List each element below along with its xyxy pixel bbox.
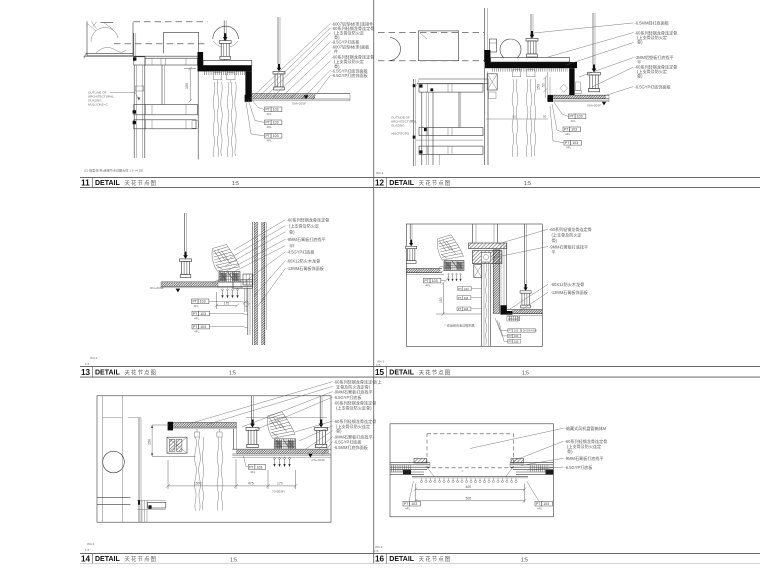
svg-text:1:5: 1:5 — [522, 371, 529, 377]
svg-text:4FL: 4FL — [250, 470, 256, 474]
svg-text:-6.5GYP打底饰面板: -6.5GYP打底饰面板 — [635, 83, 671, 89]
svg-text:4FL: 4FL — [194, 330, 200, 334]
svg-text:14: 14 — [81, 555, 91, 564]
svg-text:骨): 骨) — [336, 428, 342, 434]
svg-text:≈: ≈ — [462, 469, 464, 473]
svg-text:-6.5GYP打底饰面板: -6.5GYP打底饰面板 — [332, 72, 368, 78]
svg-text:1:5: 1:5 — [524, 181, 531, 187]
svg-text:4FL: 4FL — [565, 132, 571, 136]
svg-text:DN300X600: DN300X600 — [523, 329, 538, 333]
svg-text:平f: 平f — [289, 244, 295, 249]
svg-text:1:5: 1:5 — [232, 181, 239, 187]
svg-text:DETAIL: DETAIL — [389, 370, 414, 377]
svg-text:W4-2: W4-2 — [90, 356, 98, 360]
svg-text:件: 件 — [334, 48, 338, 54]
svg-text:1:5: 1:5 — [521, 557, 528, 563]
svg-text:-6.5MM硅打底面板: -6.5MM硅打底面板 — [635, 20, 669, 26]
svg-text:50: 50 — [543, 115, 547, 119]
svg-text:-60系列轻钢龙骨连定骨: -60系列轻钢龙骨连定骨 — [287, 217, 330, 223]
svg-text:4FL: 4FL — [267, 112, 273, 116]
svg-text:4FL: 4FL — [537, 507, 543, 511]
svg-text:150: 150 — [537, 84, 541, 90]
svg-text:4FL: 4FL — [267, 139, 273, 143]
svg-text:400: 400 — [466, 485, 472, 489]
svg-text:DN+30SF: DN+30SF — [150, 286, 164, 290]
svg-text:GM+30SF: GM+30SF — [587, 103, 601, 107]
svg-text:天花节点图: 天花节点图 — [419, 555, 451, 563]
svg-text:4FL: 4FL — [426, 284, 432, 288]
svg-text:4FL: 4FL — [405, 507, 411, 511]
svg-text:天花节点图: 天花节点图 — [419, 368, 451, 376]
svg-text:(上支骨及防火定: (上支骨及防火定 — [289, 223, 319, 229]
svg-text:天花节点图: 天花节点图 — [125, 179, 157, 187]
svg-text:11: 11 — [81, 178, 90, 187]
svg-text:DETAIL: DETAIL — [389, 556, 414, 563]
svg-text:骨): 骨) — [567, 448, 573, 454]
svg-text:475: 475 — [248, 482, 254, 486]
svg-text:DETAIL: DETAIL — [389, 180, 414, 187]
svg-text:1:5: 1:5 — [374, 549, 379, 553]
svg-text:1:5: 1:5 — [85, 362, 90, 366]
svg-text:4FL: 4FL — [194, 316, 200, 320]
svg-text:GLAZING: GLAZING — [391, 124, 405, 128]
svg-text:MULLIONS+C: MULLIONS+C — [88, 103, 109, 107]
svg-text:DETAIL: DETAIL — [95, 556, 120, 563]
svg-text:-12MM石膏板饰面板: -12MM石膏板饰面板 — [551, 289, 588, 295]
svg-text:150: 150 — [148, 439, 152, 445]
svg-text:W4-2: W4-2 — [376, 171, 384, 175]
svg-text:DN+30SF: DN+30SF — [312, 458, 326, 462]
svg-text:1:5: 1:5 — [229, 371, 236, 377]
svg-text:4FL: 4FL — [566, 146, 572, 150]
svg-text:天花节点图: 天花节点图 — [419, 179, 451, 187]
svg-text:-60X12防火木龙骨: -60X12防火木龙骨 — [551, 281, 585, 287]
svg-text:150: 150 — [185, 83, 189, 89]
svg-text:GM+30SF: GM+30SF — [292, 102, 306, 106]
svg-text:150: 150 — [439, 297, 443, 303]
svg-text:-60系列轻钢龙骨连定骨: -60系列轻钢龙骨连定骨 — [549, 226, 592, 232]
svg-text:1:5: 1:5 — [85, 548, 90, 552]
svg-text:50: 50 — [541, 83, 545, 87]
svg-text:-9MM石膏板打底找平: -9MM石膏板打底找平 — [287, 236, 326, 242]
svg-text:170: 170 — [277, 482, 283, 486]
svg-text:+65CRTGPS: +65CRTGPS — [391, 132, 409, 136]
svg-text:15: 15 — [375, 368, 385, 377]
svg-text:4FL: 4FL — [571, 119, 577, 123]
svg-text:70-BEMY: 70-BEMY — [272, 490, 285, 494]
svg-text:16: 16 — [375, 555, 385, 564]
svg-text:天花节点图: 天花节点图 — [125, 368, 157, 376]
svg-text:骨): 骨) — [637, 73, 643, 79]
svg-text:(C) 铝型材(条)连接节点详图大样 1:5 +4 DE: (C) 铝型材(条)连接节点详图大样 1:5 +4 DE — [84, 167, 143, 172]
svg-text:骨): 骨) — [552, 237, 558, 243]
svg-text:1:5: 1:5 — [230, 557, 237, 563]
svg-text:W4-2: W4-2 — [87, 542, 95, 546]
svg-text:-6.5GYP打底板: -6.5GYP打底板 — [334, 439, 362, 445]
svg-text:平: 平 — [552, 250, 556, 255]
svg-text:骨): 骨) — [637, 39, 643, 45]
svg-text:175: 175 — [224, 301, 230, 305]
svg-text:-9MM石膏板打底找平: -9MM石膏板打底找平 — [549, 243, 588, 249]
svg-text:1500: 1500 — [194, 482, 202, 486]
svg-text:支骨及防火连定骨): 支骨及防火连定骨) — [336, 383, 371, 389]
svg-text:4FL: 4FL — [267, 125, 273, 129]
svg-text:-12MM石膏板饰面板: -12MM石膏板饰面板 — [287, 265, 324, 271]
svg-text:-9MM石膏板打底找平: -9MM石膏板打底找平 — [565, 455, 604, 461]
svg-text:13: 13 — [81, 368, 91, 377]
svg-text:500: 500 — [466, 497, 472, 501]
svg-text:-6.5GYP打底板: -6.5GYP打底板 — [565, 464, 593, 470]
svg-text:GM+30: GM+30 — [508, 317, 518, 321]
svg-text:骨): 骨) — [289, 229, 295, 235]
svg-text:DETAIL: DETAIL — [95, 180, 120, 187]
svg-text:-6.5GYP打底板: -6.5GYP打底板 — [334, 394, 362, 400]
svg-text:-9MM石膏板打底找平: -9MM石膏板打底找平 — [334, 389, 373, 395]
svg-text:1:5: 1:5 — [376, 363, 381, 367]
svg-text:(上支骨及防火定骨): (上支骨及防火定骨) — [336, 404, 372, 410]
svg-text:-4.5GYP打底板: -4.5GYP打底板 — [287, 249, 315, 255]
svg-text:-6.5MM打底饰面板: -6.5MM打底饰面板 — [334, 444, 368, 450]
svg-text:(上支骨及防火定: (上支骨及防火定 — [552, 232, 582, 238]
svg-text:-60X12防火木龙骨: -60X12防火木龙骨 — [287, 258, 321, 264]
svg-text:DETAIL: DETAIL — [95, 370, 120, 377]
svg-text:4FL: 4FL — [194, 304, 200, 308]
svg-text:-暗藏式风机盘管箱体M: -暗藏式风机盘管箱体M — [565, 425, 607, 431]
svg-text:天花节点图: 天花节点图 — [125, 555, 157, 563]
svg-text:12: 12 — [375, 178, 385, 187]
svg-text:*-成品铝合金边框刷黑: *-成品铝合金边框刷黑 — [445, 323, 475, 328]
svg-text:50: 50 — [513, 115, 517, 119]
